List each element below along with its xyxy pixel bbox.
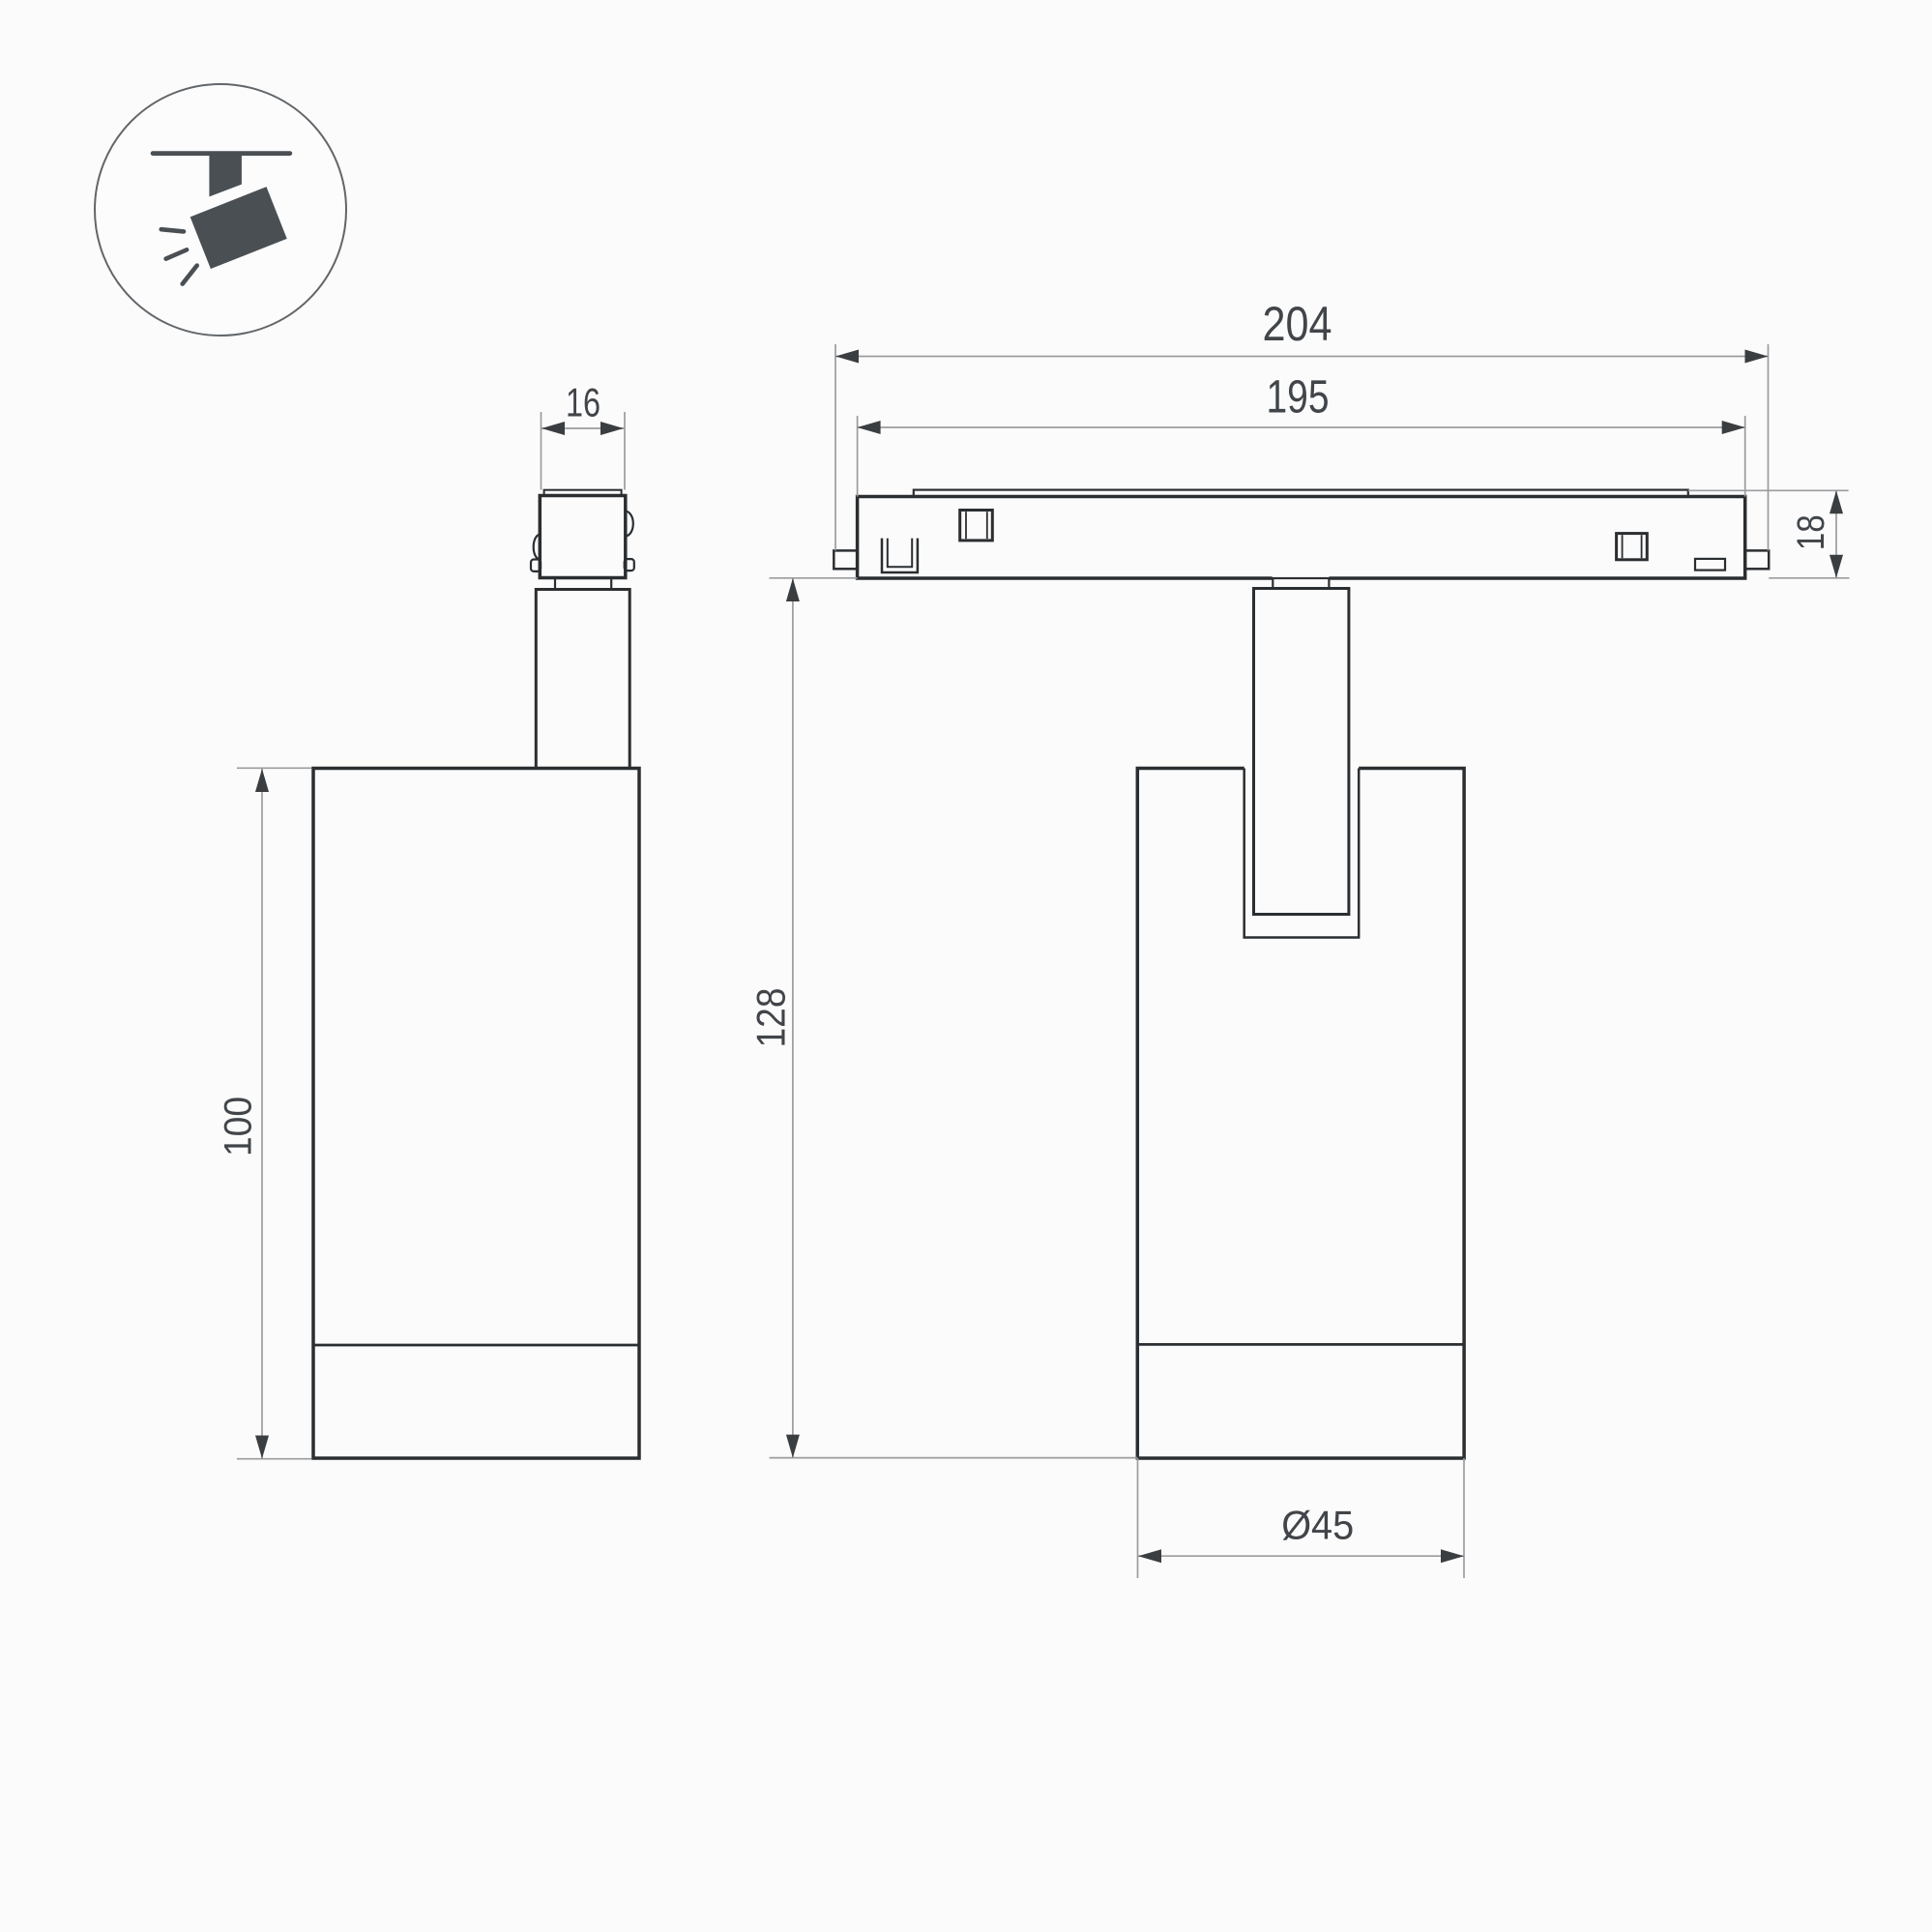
svg-text:18: 18: [1790, 514, 1832, 550]
svg-text:128: 128: [748, 988, 794, 1048]
svg-text:204: 204: [1263, 297, 1332, 351]
svg-text:16: 16: [566, 380, 600, 425]
svg-text:Ø45: Ø45: [1281, 1503, 1354, 1548]
svg-text:100: 100: [218, 1097, 260, 1156]
svg-text:195: 195: [1267, 371, 1330, 423]
